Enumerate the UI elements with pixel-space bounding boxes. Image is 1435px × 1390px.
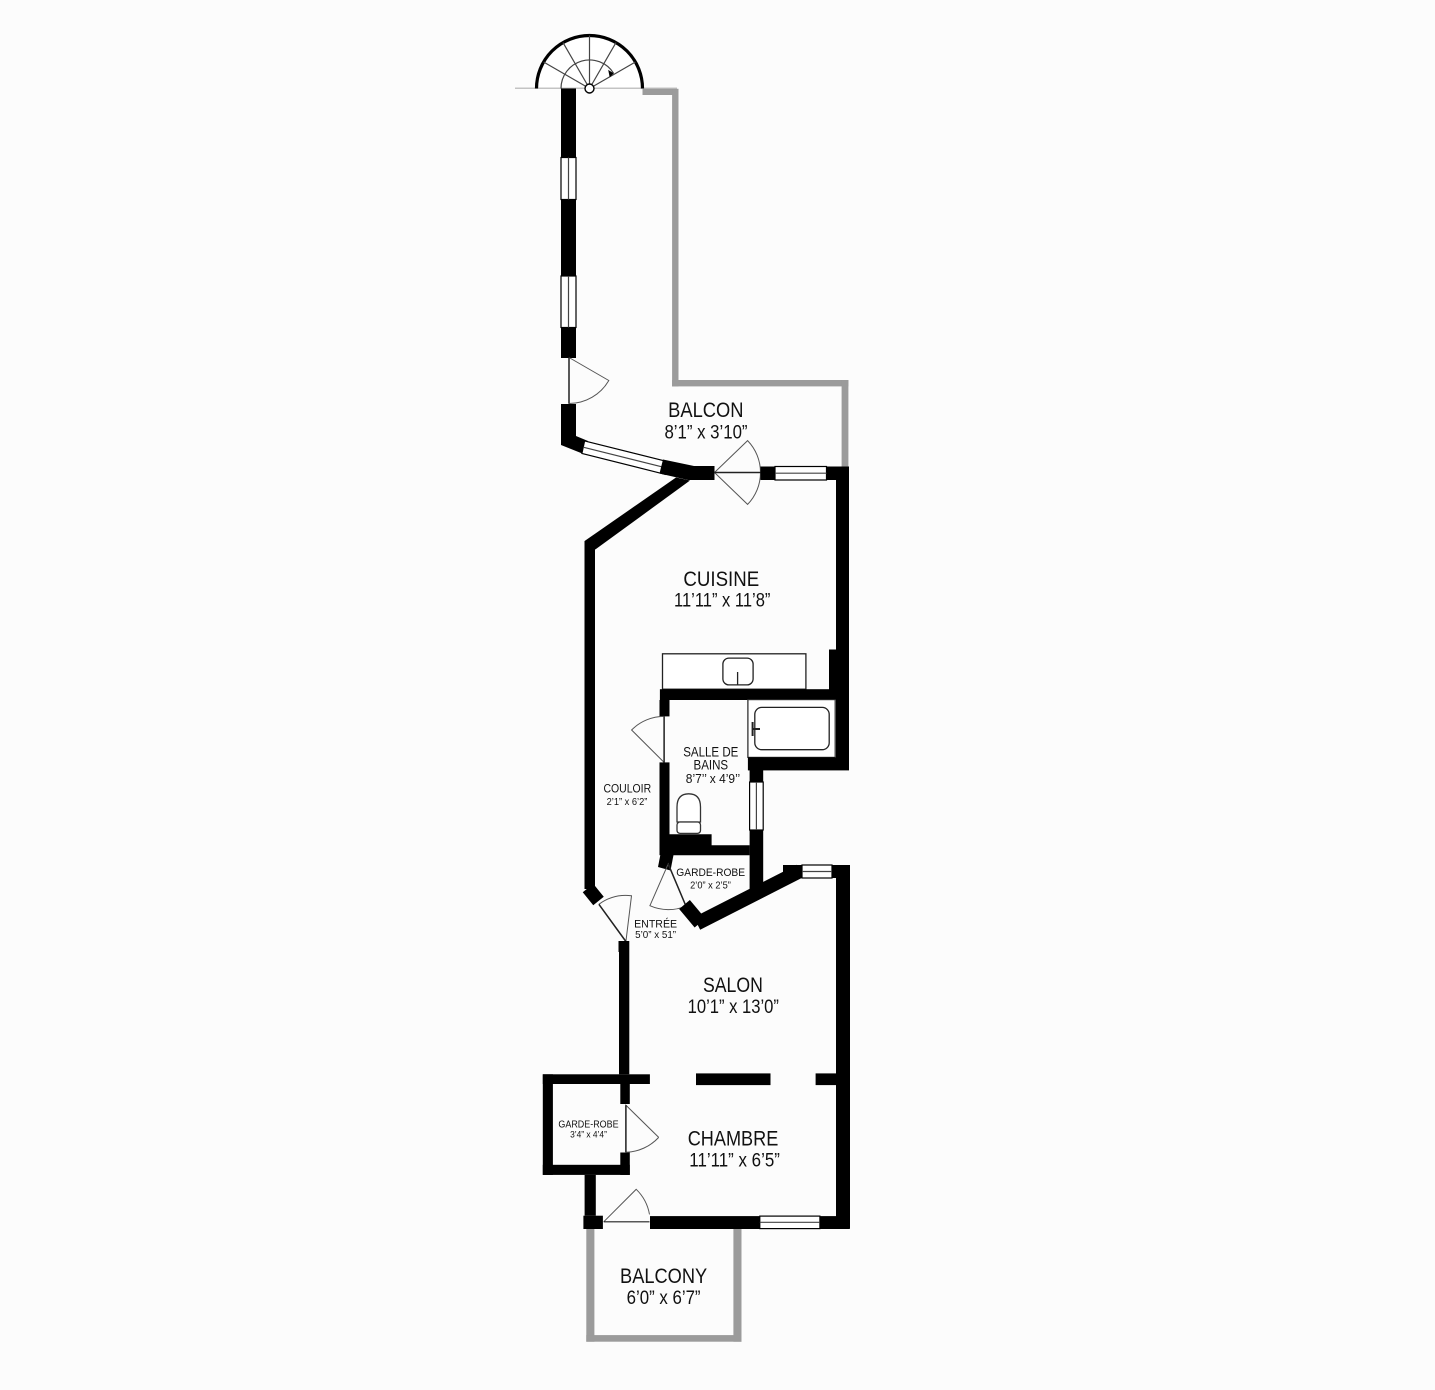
svg-text:6’0” x 6’7”: 6’0” x 6’7” [627, 1288, 701, 1309]
svg-text:10’1” x 13’0”: 10’1” x 13’0” [688, 997, 779, 1018]
svg-text:2’1” x 6’2”: 2’1” x 6’2” [607, 796, 648, 808]
svg-text:CHAMBRE: CHAMBRE [688, 1128, 779, 1151]
svg-text:11’11” x 11’8”: 11’11” x 11’8” [674, 590, 770, 611]
svg-text:BALCON: BALCON [668, 399, 743, 422]
svg-text:SALON: SALON [703, 974, 763, 997]
svg-text:11’11” x 6’5”: 11’11” x 6’5” [689, 1151, 780, 1172]
svg-text:BALCONY: BALCONY [620, 1265, 707, 1288]
svg-text:CUISINE: CUISINE [683, 568, 759, 591]
svg-text:GARDE-ROBE: GARDE-ROBE [676, 867, 745, 879]
svg-text:5’0” x 51”: 5’0” x 51” [635, 929, 676, 941]
svg-text:3’4” x 4’4”: 3’4” x 4’4” [570, 1130, 607, 1141]
svg-text:8’7’’ x 4’9’’: 8’7’’ x 4’9’’ [686, 772, 740, 786]
svg-text:2’0” x 2’5”: 2’0” x 2’5” [690, 881, 731, 892]
svg-text:8’1” x 3’10”: 8’1” x 3’10” [664, 423, 747, 444]
svg-text:COULOIR: COULOIR [603, 784, 651, 796]
svg-text:BAINS: BAINS [694, 757, 729, 773]
